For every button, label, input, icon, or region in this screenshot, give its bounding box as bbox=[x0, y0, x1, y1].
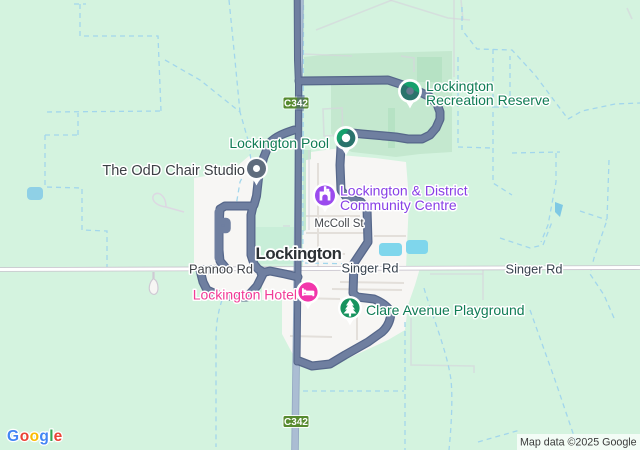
svg-text:G: G bbox=[7, 428, 19, 445]
svg-text:Community Centre: Community Centre bbox=[340, 197, 457, 213]
svg-text:McColl St: McColl St bbox=[314, 218, 364, 230]
svg-text:e: e bbox=[54, 428, 63, 445]
svg-text:C342: C342 bbox=[284, 417, 308, 428]
svg-text:g: g bbox=[39, 428, 48, 445]
svg-text:Clare Avenue Playground: Clare Avenue Playground bbox=[366, 302, 525, 318]
svg-text:The OdD Chair Studio: The OdD Chair Studio bbox=[102, 163, 245, 179]
svg-text:Lockington Pool: Lockington Pool bbox=[229, 135, 329, 151]
svg-text:Map data ©2025 Google: Map data ©2025 Google bbox=[520, 437, 637, 449]
svg-text:Singer Rd: Singer Rd bbox=[506, 262, 563, 277]
svg-text:C342: C342 bbox=[284, 99, 308, 110]
svg-text:Lockington Hotel: Lockington Hotel bbox=[193, 287, 297, 303]
svg-text:o: o bbox=[20, 428, 29, 445]
svg-text:o: o bbox=[30, 428, 39, 445]
svg-text:Singer Rd: Singer Rd bbox=[342, 261, 399, 276]
svg-text:Recreation Reserve: Recreation Reserve bbox=[426, 92, 550, 108]
svg-text:Pannoo Rd: Pannoo Rd bbox=[189, 262, 253, 277]
svg-text:Lockington: Lockington bbox=[256, 244, 342, 263]
